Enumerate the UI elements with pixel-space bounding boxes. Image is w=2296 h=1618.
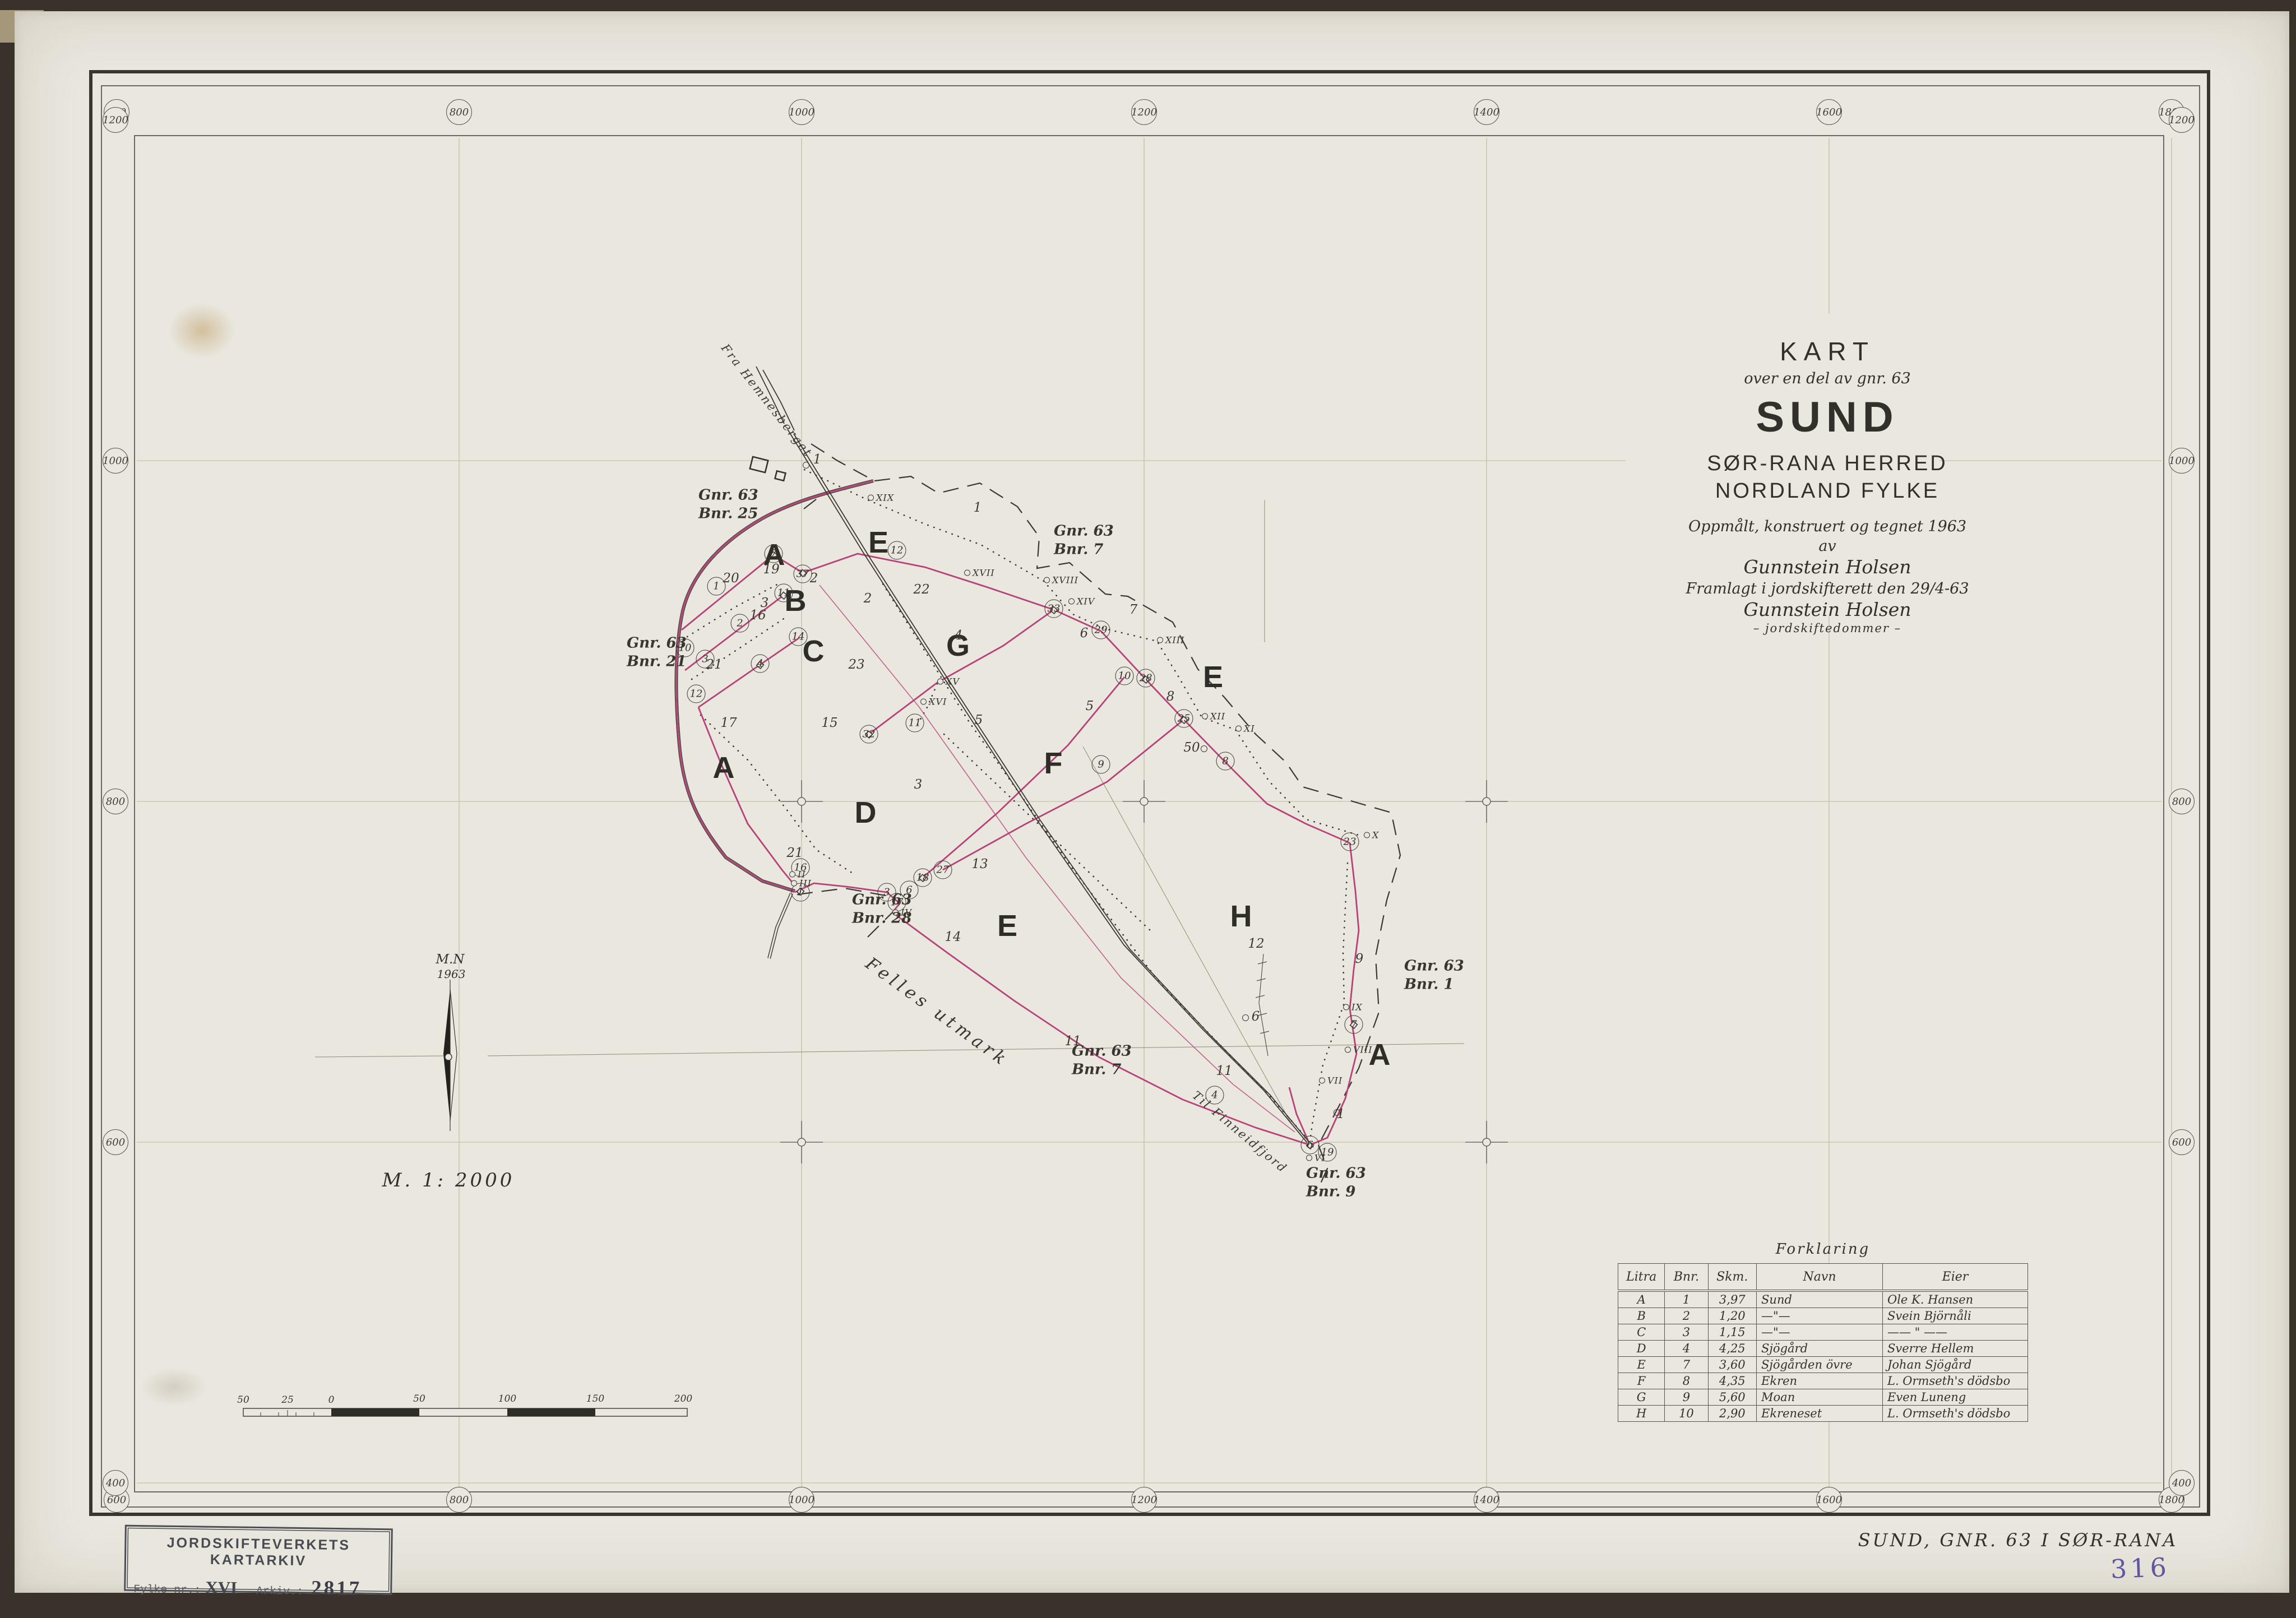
scale-bar-tick-label: 50 (237, 1394, 249, 1406)
north-arrow-icon (443, 980, 457, 1131)
legend-cell: 2,90 (1708, 1406, 1756, 1422)
survey-square-markers (757, 551, 1358, 1149)
legend-row: C31,15—"——— " —— (1618, 1324, 2028, 1341)
legend-header-row: LitraBnr.Skm.NavnEier (1618, 1264, 2028, 1291)
pink-boundaries (676, 481, 1359, 1145)
legend-row: H102,90EkrenesetL. Ormseth's dödsbo (1618, 1406, 2028, 1422)
surveyor-signature: Gunnstein Holsen (1670, 556, 1984, 578)
building-symbols (750, 457, 786, 481)
sheet-caption: SUND, GNR. 63 I SØR-RANA (1858, 1529, 2178, 1551)
legend-cell: Ekreneset (1757, 1406, 1883, 1422)
stamp-title: JORDSKIFTEVERKETS KARTARKIV (126, 1534, 391, 1571)
scale-bar-tick-label: 100 (498, 1393, 516, 1404)
stamp-fylke-value: XVI (205, 1578, 237, 1598)
legend-col-litra: Litra (1618, 1264, 1665, 1291)
legend-row: F84,35EkrenL. Ormseth's dödsbo (1618, 1373, 2028, 1389)
hatched-fence (1256, 954, 1269, 1056)
stamp-arkiv-label: Arkiv.: (256, 1585, 303, 1598)
legend-cell: Ekren (1757, 1373, 1883, 1389)
legend-cell: L. Ormseth's dödsbo (1883, 1373, 2028, 1389)
dashed-boundaries (797, 444, 1400, 1188)
judge-signature: Gunnstein Holsen (1670, 599, 1984, 620)
legend-cell: F (1618, 1373, 1665, 1389)
scale-bar-tick-label: 200 (674, 1393, 692, 1404)
map-name: SUND (1670, 393, 1984, 442)
legend-col-eier: Eier (1883, 1264, 2028, 1291)
legend-block: Forklaring LitraBnr.Skm.NavnEier A13,97S… (1618, 1241, 2028, 1422)
framlagt-line: Framlagt i jordskifterett den 29/4-63 (1670, 580, 1984, 597)
legend-table: LitraBnr.Skm.NavnEier A13,97SundOle K. H… (1618, 1263, 2028, 1422)
scale-bar (243, 1408, 687, 1416)
legend-cell: Sjögården övre (1757, 1357, 1883, 1373)
compass-label: M.N (436, 952, 465, 967)
main-road (756, 367, 1313, 1147)
legend-cell: 3,60 (1708, 1357, 1756, 1373)
legend-cell: Ole K. Hansen (1883, 1291, 2028, 1308)
dotted-boundaries (687, 470, 1362, 1141)
legend-cell: 1,20 (1708, 1308, 1756, 1324)
scale-bar-tick-label: 25 (281, 1394, 294, 1406)
legend-cell: B (1618, 1308, 1665, 1324)
legend-col-skm: Skm. (1708, 1264, 1756, 1291)
legend-cell: 10 (1665, 1406, 1708, 1422)
legend-cell: Sund (1757, 1291, 1883, 1308)
legend-row: B21,20—"—Svein Björnåli (1618, 1308, 2028, 1324)
herred-line: SØR-RANA HERRED (1670, 452, 1984, 476)
legend-cell: Johan Sjögård (1883, 1357, 2028, 1373)
legend-cell: 1 (1665, 1291, 1708, 1308)
legend-cell: 1,15 (1708, 1324, 1756, 1341)
legend-cell: C (1618, 1324, 1665, 1341)
legend-cell: —— " —— (1883, 1324, 2028, 1341)
legend-cell: H (1618, 1406, 1665, 1422)
legend-cell: 4 (1665, 1341, 1708, 1357)
scanned-map-sheet: 6008001000120014001600180060080010001200… (0, 0, 2296, 1618)
legend-row: A13,97SundOle K. Hansen (1618, 1291, 2028, 1308)
legend-cell: A (1618, 1291, 1665, 1308)
legend-row: G95,60MoanEven Luneng (1618, 1389, 2028, 1406)
legend-cell: Svein Björnåli (1883, 1308, 2028, 1324)
page-number: 316 (2110, 1552, 2170, 1584)
legend-cell: —"— (1757, 1324, 1883, 1341)
map-subtitle: over en del av gnr. 63 (1670, 370, 1984, 387)
legend-title: Forklaring (1618, 1241, 2028, 1258)
title-block: KART over en del av gnr. 63 SUND SØR-RAN… (1670, 336, 1984, 635)
stamp-fylke-label: Fylke nr.: (133, 1583, 201, 1597)
legend-row: E73,60Sjögården övreJohan Sjögård (1618, 1357, 2028, 1373)
scale-bar-tick-label: 50 (413, 1393, 425, 1404)
legend-cell: 9 (1665, 1389, 1708, 1406)
stamp-arkiv-value: 2817 (311, 1576, 362, 1601)
scale-bar-tick-label: 150 (586, 1393, 604, 1404)
legend-cell: 2 (1665, 1308, 1708, 1324)
scale-bar-tick-label: 0 (328, 1394, 335, 1406)
legend-col-bnr: Bnr. (1665, 1264, 1708, 1291)
surveyed-line: Oppmålt, konstruert og tegnet 1963 (1670, 518, 1984, 535)
legend-row: D44,25SjögårdSverre Hellem (1618, 1341, 2028, 1357)
map-title-kart: KART (1670, 336, 1984, 367)
fylke-line: NORDLAND FYLKE (1670, 479, 1984, 503)
legend-cell: 5,60 (1708, 1389, 1756, 1406)
legend-cell: 3,97 (1708, 1291, 1756, 1308)
legend-cell: 4,25 (1708, 1341, 1756, 1357)
legend-cell: 8 (1665, 1373, 1708, 1389)
legend-cell: 3 (1665, 1324, 1708, 1341)
av-line: av (1670, 537, 1984, 555)
legend-cell: D (1618, 1341, 1665, 1357)
legend-col-navn: Navn (1757, 1264, 1883, 1291)
legend-cell: Sjögård (1757, 1341, 1883, 1357)
compass-year: 1963 (437, 967, 466, 981)
legend-cell: Moan (1757, 1389, 1883, 1406)
judge-title: – jordskiftedommer – (1670, 622, 1984, 635)
legend-cell: 4,35 (1708, 1373, 1756, 1389)
legend-cell: Even Luneng (1883, 1389, 2028, 1406)
legend-cell: G (1618, 1389, 1665, 1406)
legend-cell: L. Ormseth's dödsbo (1883, 1406, 2028, 1422)
legend-cell: E (1618, 1357, 1665, 1373)
legend-cell: —"— (1757, 1308, 1883, 1324)
legend-cell: 7 (1665, 1357, 1708, 1373)
scale-text: M. 1: 2000 (382, 1169, 515, 1192)
legend-cell: Sverre Hellem (1883, 1341, 2028, 1357)
archive-stamp: JORDSKIFTEVERKETS KARTARKIV Fylke nr.: X… (124, 1525, 393, 1595)
